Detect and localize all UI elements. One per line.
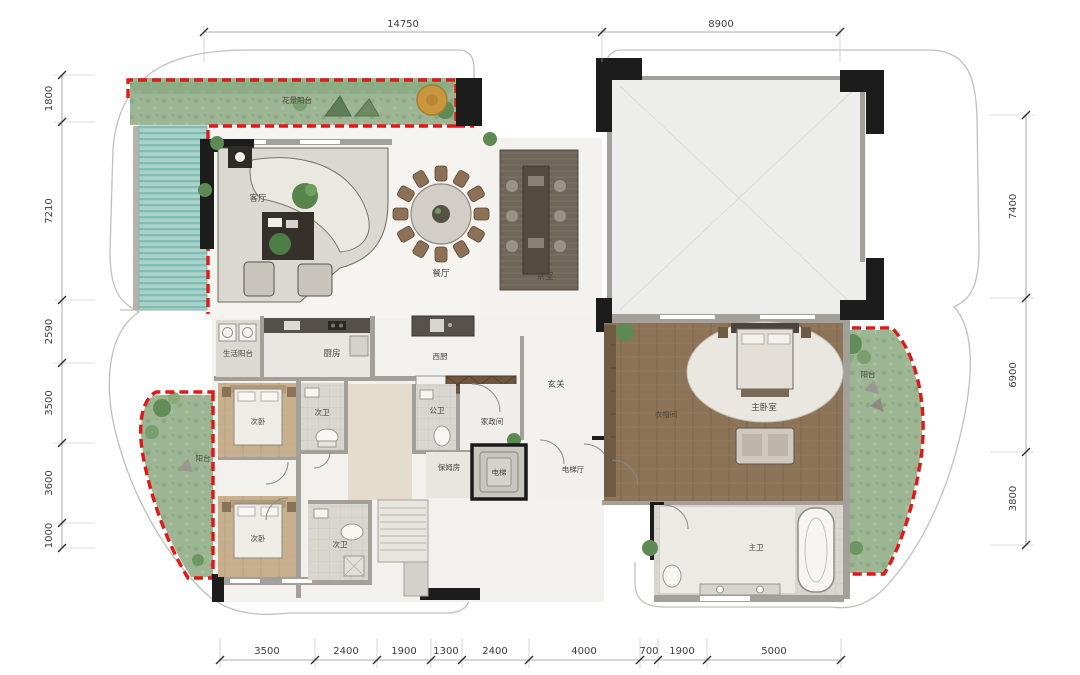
sink [314,509,328,518]
room-label-public-bath: 公卫 [430,406,445,415]
dim-top-0: 14750 [387,19,419,30]
wardrobe [604,325,616,497]
cushion [506,240,518,252]
service-balcony: 生活阳台 [216,320,260,377]
nightstand [287,502,296,512]
nightstand [801,327,811,338]
room-label-housekeeping: 家政间 [481,416,504,426]
room-label-garden-balcony: 花景阳台 [282,95,312,105]
bed-bench [741,389,789,397]
room-label-west-kitchen: 西厨 [433,352,448,361]
dimension-chain-left: 1800 7210 2590 3500 3600 1000 [44,71,95,552]
cooktop [328,321,346,330]
dim-left-3: 3500 [44,390,55,415]
dim-bottom-3: 1300 [433,646,458,657]
housekeeping-room: 家政间 [460,384,521,450]
room-label-kitchen: 厨房 [323,348,340,359]
plant-icon [642,540,658,556]
dim-left-4: 3600 [44,470,55,495]
plant-icon [269,233,291,255]
balcony-right: 阳台 [838,330,922,573]
fridge [350,336,368,356]
sink [305,388,319,397]
room-label-bedroom-b: 次卧 [251,533,266,543]
dim-bottom-4: 2400 [482,646,507,657]
nanny-room: 保姆房 [426,452,472,498]
plant-icon [616,323,634,341]
cushion [554,240,566,252]
nightstand [222,387,231,397]
cushion [506,210,518,222]
elevator-hall: 电梯厅 [536,440,610,500]
toilet [663,565,681,587]
room-label-master-bath: 主卫 [749,542,764,552]
bathtub [798,508,834,592]
room-label-master-bedroom: 主卧室 [751,402,777,413]
nightstand [287,387,296,397]
room-label-elevator-hall: 电梯厅 [562,464,585,474]
master-bath: 主卫 [642,505,843,595]
room-label-tea-room: 茶室 [536,271,554,282]
washer [219,324,236,341]
dim-left-2: 2590 [44,319,55,344]
bedroom-a: 次卧 [218,383,296,457]
lap-pool [133,126,207,310]
room-label-bedroom-a: 次卧 [251,416,266,426]
room-label-balcony-right: 阳台 [861,369,876,379]
dim-right-1: 6900 [1008,362,1019,387]
kitchen: 厨房 [264,318,370,377]
floor-plan-image: 花景阳台 阳台 阳台 [0,0,1080,675]
shrub-icon [849,541,863,555]
dim-bottom-8: 5000 [761,646,786,657]
shrub-icon [153,399,171,417]
dim-bottom-6: 700 [639,646,658,657]
nightstand [718,327,728,338]
dim-top-1: 8900 [708,19,733,30]
room-label-bath-b: 次卫 [333,539,348,549]
island-sink [430,319,444,332]
floor-plan-page: 花景阳台 阳台 阳台 [0,0,1080,675]
lounge-chair [244,262,274,296]
shrub-icon [145,425,159,439]
public-bath: 公卫 [416,384,456,450]
cushion [554,210,566,222]
room-label-nanny: 保姆房 [438,462,461,472]
kitchen-counter [264,318,370,333]
plant-icon [483,132,497,146]
room-label-dining: 餐厅 [432,269,450,279]
shrub-icon [192,554,204,566]
shrub-icon [857,350,871,364]
sink [284,321,300,330]
room-label-service-balcony: 生活阳台 [223,348,253,358]
dryer [239,324,256,341]
bath-a: 次卫 [301,383,344,450]
dimension-chain-right: 7400 6900 3800 [990,111,1034,549]
dim-bottom-0: 3500 [254,646,279,657]
dim-left-5: 1000 [44,523,55,548]
dim-bottom-5: 4000 [571,646,596,657]
tea-room: 茶室 [500,150,578,290]
room-label-cloakroom: 衣帽间 [655,409,678,419]
storage [404,562,428,596]
plant-icon [210,136,224,150]
bedroom-b: 次卧 [218,496,296,577]
plant-icon [198,183,212,197]
room-label-foyer: 玄关 [547,379,565,390]
bath-b: 次卫 [308,504,368,580]
dim-left-0: 1800 [44,86,55,111]
lounge-chair [298,264,332,296]
room-label-elevator: 电梯 [492,467,507,477]
elevator: 电梯 [472,445,526,499]
room-label-balcony-left: 阳台 [196,453,211,463]
room-label-bath-a: 次卫 [315,407,330,417]
garden-balcony-top: 花景阳台 [130,78,456,125]
cushion [554,180,566,192]
dim-left-1: 7210 [44,198,55,223]
dimension-chain-bottom: 3500 2400 1900 1300 2400 4000 700 1900 5… [216,638,845,668]
dim-right-2: 3800 [1008,486,1019,511]
dim-bottom-2: 1900 [391,646,416,657]
dim-bottom-1: 2400 [333,646,358,657]
cushion [506,180,518,192]
toilet [341,524,363,540]
dim-bottom-7: 1900 [669,646,694,657]
dimension-chain-top: 14750 8900 [200,19,844,62]
shrub-icon [168,392,180,404]
balcony-left: 阳台 [141,392,213,577]
room-label-living: 客厅 [249,193,267,204]
dim-right-0: 7400 [1008,194,1019,219]
master-suite: 衣帽间 主卧室 [604,322,843,501]
sink [420,390,433,399]
vanity [700,584,780,595]
toilet [434,426,450,446]
nightstand [222,502,231,512]
stairs [378,500,428,562]
